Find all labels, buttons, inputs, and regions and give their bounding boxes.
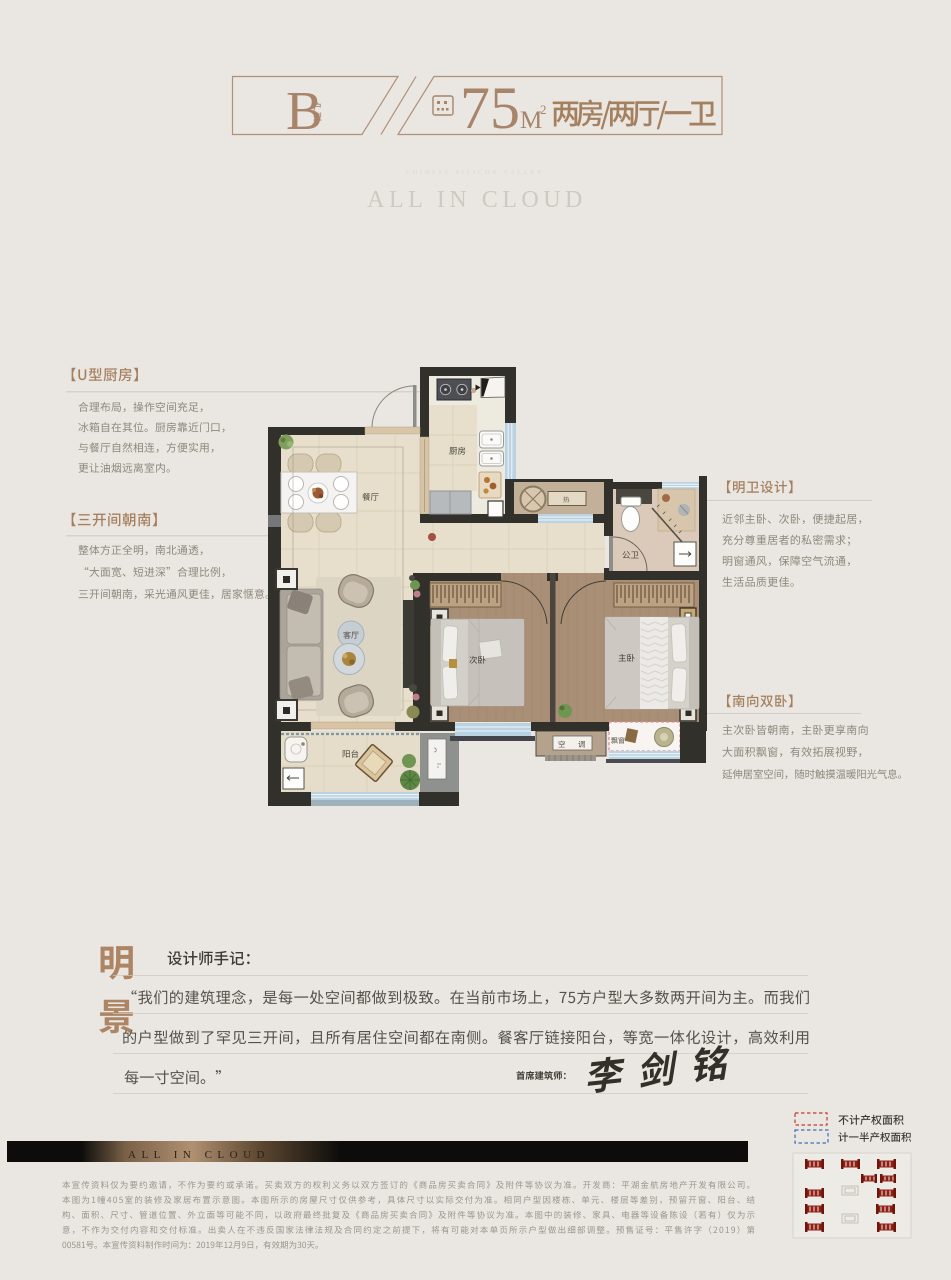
svg-text:ALL IN CLOUD: ALL IN CLOUD bbox=[367, 187, 587, 213]
svg-text:M: M bbox=[520, 107, 542, 134]
svg-text:75: 75 bbox=[460, 75, 520, 141]
svg-text:ALL IN CLOUD: ALL IN CLOUD bbox=[128, 1149, 270, 1161]
svg-text:2: 2 bbox=[540, 102, 547, 117]
svg-text:CHINESE SILICON VALLEY: CHINESE SILICON VALLEY bbox=[406, 169, 545, 176]
svg-text:B: B bbox=[286, 80, 323, 141]
